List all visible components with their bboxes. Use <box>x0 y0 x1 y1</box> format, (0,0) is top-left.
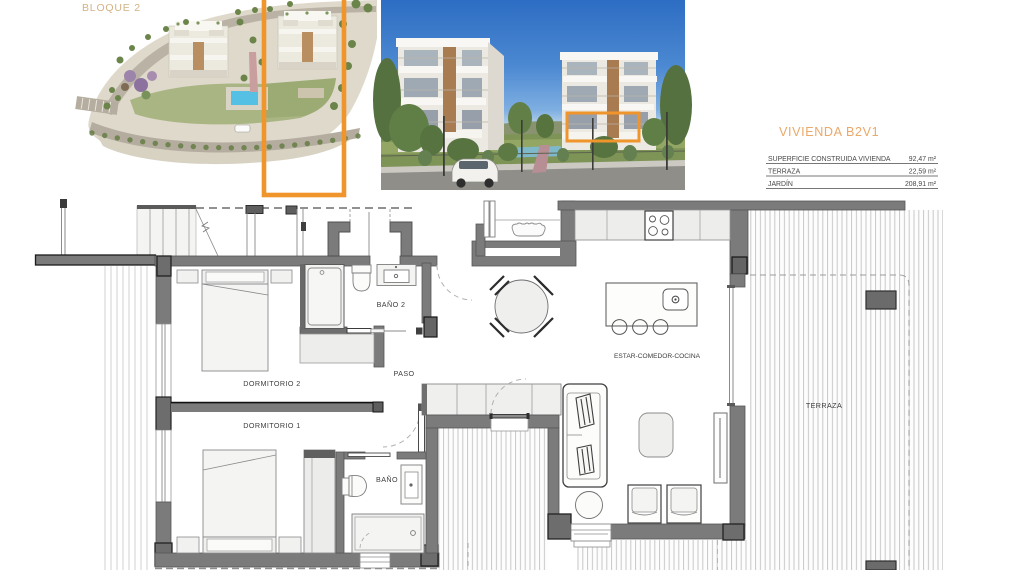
svg-text:92,47 m²: 92,47 m² <box>909 156 937 163</box>
svg-text:PASO: PASO <box>393 369 414 378</box>
svg-text:TERRAZA: TERRAZA <box>806 401 842 410</box>
svg-text:JARDÍN: JARDÍN <box>768 179 793 188</box>
svg-text:SUPERFICIE CONSTRUIDA VIVIENDA: SUPERFICIE CONSTRUIDA VIVIENDA <box>768 156 891 163</box>
svg-text:BAÑO 2: BAÑO 2 <box>377 300 406 309</box>
svg-text:DORMITORIO 2: DORMITORIO 2 <box>243 379 300 388</box>
svg-text:22,59 m²: 22,59 m² <box>909 169 937 176</box>
svg-text:TERRAZA: TERRAZA <box>768 169 801 176</box>
svg-text:ESTAR-COMEDOR-COCINA: ESTAR-COMEDOR-COCINA <box>614 353 701 360</box>
svg-text:VIVIENDA B2V1: VIVIENDA B2V1 <box>779 125 879 139</box>
svg-text:BLOQUE 2: BLOQUE 2 <box>82 2 141 14</box>
svg-text:BAÑO: BAÑO <box>376 475 398 484</box>
svg-text:DORMITORIO 1: DORMITORIO 1 <box>243 421 300 430</box>
svg-text:208,91 m²: 208,91 m² <box>905 181 937 188</box>
